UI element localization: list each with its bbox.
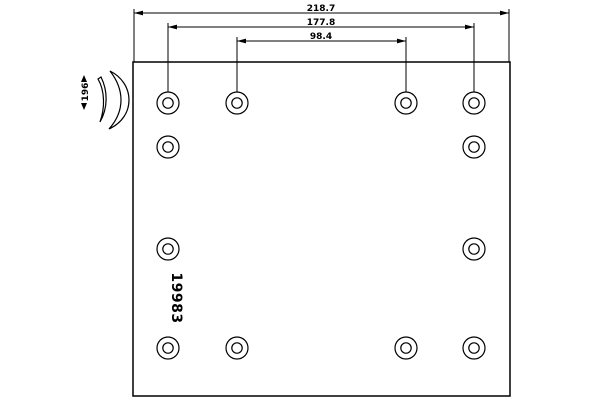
rivet-hole	[157, 92, 179, 114]
rivet-hole	[157, 136, 179, 158]
dimension-label-outer: 177.8	[307, 18, 335, 28]
rivet-hole	[226, 92, 248, 114]
technical-drawing: 218.7 177.8 98.4	[0, 0, 600, 400]
arrowhead-right-inner	[397, 39, 406, 44]
rivet-hole	[157, 337, 179, 359]
rivet-hole	[463, 337, 485, 359]
part-number-text: 19983	[168, 272, 184, 323]
rivet-hole	[463, 238, 485, 260]
rivet-hole	[395, 337, 417, 359]
lining-profile-thin-arc	[98, 77, 106, 122]
arrowhead-left-overall	[134, 11, 143, 16]
rivet-hole	[463, 92, 485, 114]
width-arrow-down	[81, 103, 87, 110]
dimension-label-inner: 98.4	[310, 32, 332, 42]
arrowhead-right-overall	[500, 11, 509, 16]
arrowhead-left-inner	[237, 39, 246, 44]
lining-profile-crescent	[109, 71, 129, 129]
lining-profile-icon	[98, 71, 129, 129]
rivet-hole	[157, 238, 179, 260]
arrowhead-left-outer	[168, 25, 177, 30]
rivet-hole	[463, 136, 485, 158]
backing-plate-outline	[133, 62, 510, 396]
width-label: 196	[81, 83, 91, 102]
width-arrow-up	[81, 75, 87, 82]
rivet-hole	[395, 92, 417, 114]
dimension-label-overall: 218.7	[307, 4, 335, 14]
arrowhead-right-outer	[465, 25, 474, 30]
rivet-hole	[226, 337, 248, 359]
drawing-canvas: 218.7 177.8 98.4	[0, 0, 600, 400]
